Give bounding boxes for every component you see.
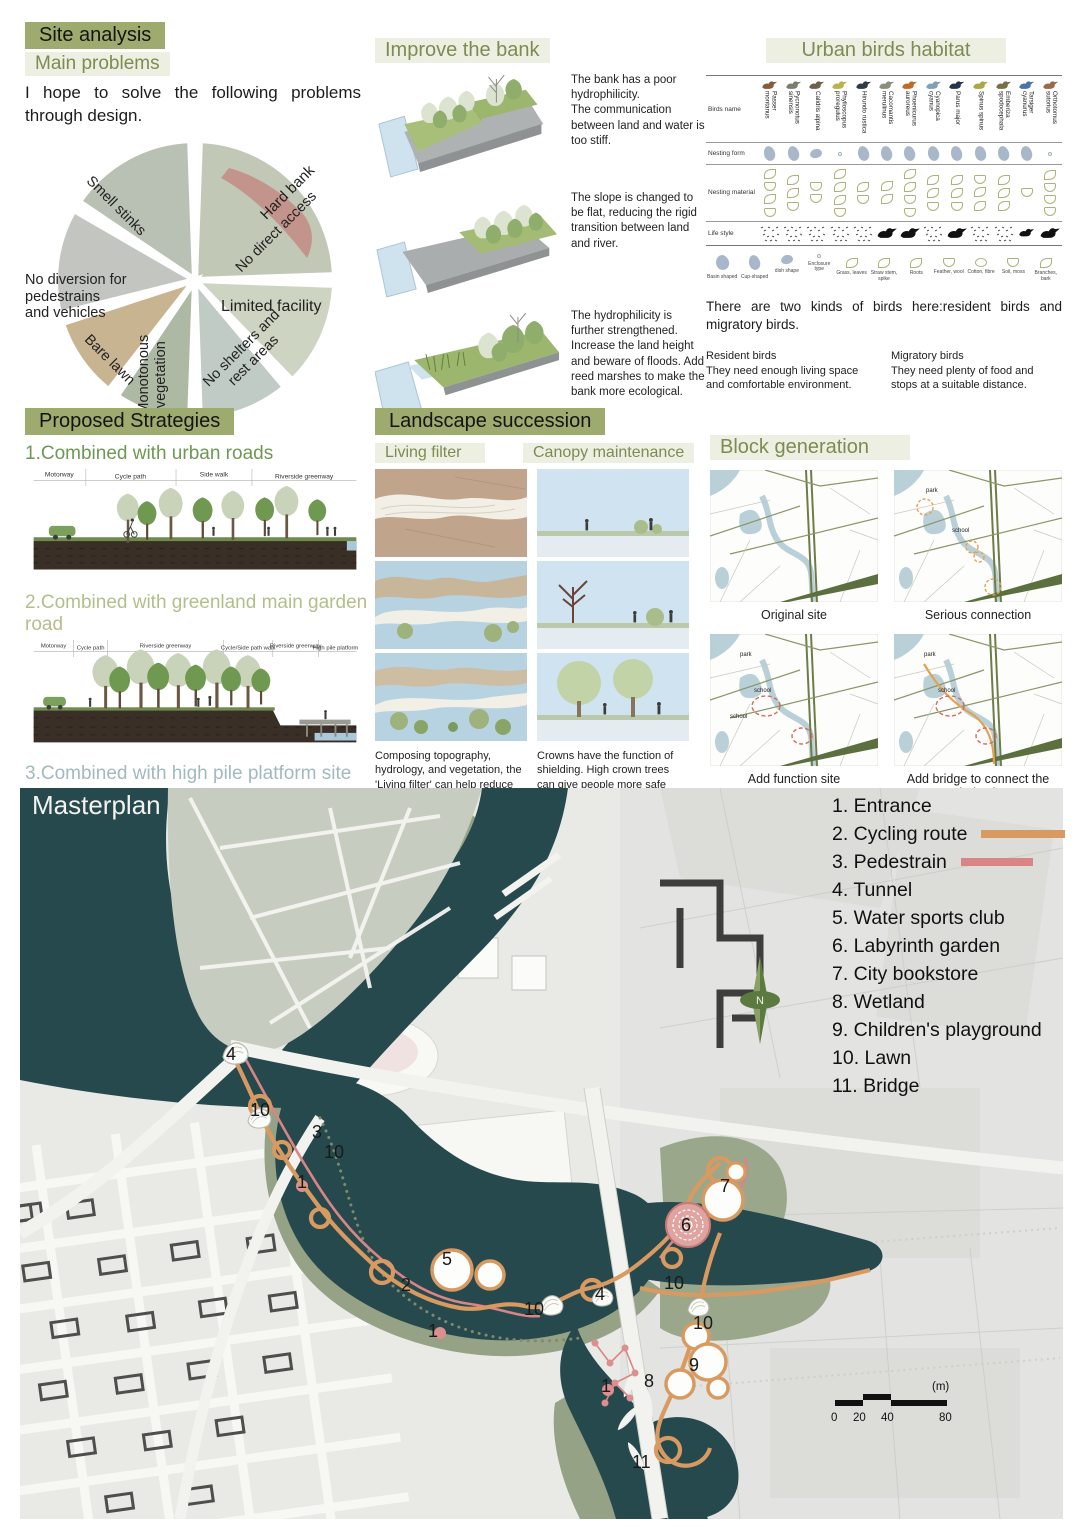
living-filter-heading: Living filter: [375, 443, 485, 463]
legend-caption: Soil, moss: [1002, 270, 1025, 276]
bird-icon: [761, 80, 778, 91]
canopy-heading: Canopy maintenance: [523, 443, 694, 463]
improve-bank-title: Improve the bank: [375, 38, 550, 63]
bird-icon: [901, 80, 918, 91]
nest-material-icons: [828, 167, 851, 219]
nest-material-icons: [922, 174, 945, 213]
bank-diagram-slope: [375, 191, 561, 299]
bird-name: Phoenicurus auroreus: [903, 91, 916, 139]
living-filter-image-3: [375, 653, 527, 741]
block-generation-section: Block generation Original: [710, 435, 1066, 806]
straw-stem-icon: [878, 258, 890, 268]
svg-text:1: 1: [601, 1376, 611, 1396]
birds-title: Urban birds habitat: [766, 38, 1006, 63]
north-label: N: [756, 995, 764, 1007]
basin-shaped-icon: [714, 253, 730, 271]
nest-material-icons: [992, 173, 1015, 213]
problems-pie-diagram: Smell stinks Hard bank No direct access …: [25, 130, 365, 430]
resident-bird-icon: [876, 226, 898, 241]
section-label: Riverside greenway: [275, 473, 334, 480]
school-label: school: [730, 714, 747, 720]
strategy-2-section-drawing: Motorway Cycle path Riverside greenway C…: [25, 638, 365, 750]
bird-name: Cyanopica cyanus: [927, 91, 940, 139]
migratory-birds-title: Migratory birds: [891, 349, 1062, 363]
roots-icon: [910, 258, 922, 268]
cup-shaped-icon: [747, 254, 761, 271]
poster: Site analysis Main problems I hope to so…: [0, 0, 1080, 1527]
park-label: park: [924, 652, 937, 658]
block-map-2: park school Serious connection: [894, 470, 1062, 628]
strategy-1-section-drawing: Motorway Cycle path Side walk Riverside …: [25, 467, 365, 579]
footprints-icon: [806, 225, 826, 242]
legend-caption: Grass, leaves: [836, 271, 867, 277]
masterplan-title: Masterplan: [32, 790, 161, 821]
canopy-image-2: [537, 561, 689, 649]
legend-caption: Roots: [910, 271, 923, 277]
legend-item: 11. Bridge: [832, 1073, 1065, 1101]
row-label-birds-name: Birds name: [706, 106, 758, 113]
block-generation-title: Block generation: [710, 435, 910, 460]
school-label: school: [938, 688, 955, 694]
nest-form-icon: [1048, 152, 1052, 156]
bank-diagram-hard: [375, 73, 561, 181]
resident-bird-icon: [1039, 226, 1061, 241]
nest-form-icon: [763, 145, 777, 162]
migratory-birds-block: Migratory birds They need plenty of food…: [891, 349, 1062, 392]
svg-text:80: 80: [939, 1412, 952, 1424]
cycling-route-swatch: [981, 830, 1065, 838]
living-filter-image-2: [375, 561, 527, 649]
cotton-fibre-icon: [975, 258, 987, 267]
legend-caption: Branches, bark: [1030, 271, 1062, 282]
bird-icon: [1042, 80, 1059, 91]
legend-item: 7. City bookstore: [832, 961, 1065, 989]
school-label: school: [754, 688, 771, 694]
svg-text:10: 10: [693, 1313, 713, 1333]
site-analysis-title: Site analysis: [25, 22, 165, 49]
svg-text:3: 3: [312, 1122, 322, 1142]
nest-material-icons: [852, 180, 875, 205]
resident-bird-icon: [1018, 227, 1035, 239]
bank-diagram-marsh: [375, 309, 561, 417]
block-map-caption: Serious connection: [894, 608, 1062, 622]
bird-name: Hirundo rustica: [860, 91, 867, 139]
bird-name: Phylloscopus proregulus: [833, 91, 846, 139]
svg-text:10: 10: [250, 1100, 270, 1120]
svg-text:8: 8: [644, 1371, 654, 1391]
site-analysis-section: Site analysis Main problems I hope to so…: [25, 22, 370, 430]
branches-bark-icon: [1040, 258, 1052, 268]
park-label: park: [926, 488, 939, 494]
legend-item: 4. Tunnel: [832, 876, 1065, 904]
feather-wool-icon: [943, 258, 955, 267]
nest-form-icon: [926, 145, 940, 162]
bird-name: Emberiza spodocephala: [997, 91, 1010, 139]
bird-icon: [855, 80, 872, 91]
resident-birds-block: Resident birds They need enough living s…: [706, 349, 877, 392]
nest-form-icon: [786, 145, 800, 162]
park-label: park: [740, 652, 753, 658]
legend-caption: dish shape: [775, 269, 799, 275]
birds-table: Birds name Passer montanus Pycnonotus si…: [706, 75, 1062, 246]
legend-caption: Enclosure type: [803, 262, 835, 273]
resident-birds-text: They need enough living space and comfor…: [706, 364, 877, 393]
trees: [93, 649, 271, 708]
svg-text:10: 10: [324, 1142, 344, 1162]
resident-bird-icon: [899, 226, 921, 241]
svg-text:4: 4: [226, 1044, 236, 1064]
section-label: High pile platform: [313, 645, 359, 651]
svg-text:2: 2: [401, 1275, 411, 1295]
section-label: Cycle path: [115, 473, 147, 480]
svg-text:0: 0: [831, 1412, 837, 1424]
bird-name: Calidris alpina: [813, 91, 820, 139]
section-label: Side walk: [200, 471, 229, 478]
legend-caption: Straw stem, spike: [868, 271, 900, 282]
nest-material-icons: [805, 181, 828, 205]
masterplan-legend: 1. Entrance 2. Cycling route 3. Pedestra…: [832, 792, 1065, 1101]
svg-text:10: 10: [664, 1273, 684, 1293]
section-label: Cycle/Side path walk: [221, 645, 276, 651]
bird-icon: [808, 80, 825, 91]
footprints-icon: [760, 225, 780, 242]
row-label-nesting-form: Nesting form: [706, 150, 758, 157]
enclosure-type-icon: [817, 254, 821, 258]
legend-caption: Basin shaped: [707, 275, 737, 281]
section-label: Cycle path: [77, 645, 105, 651]
improve-bank-section: Improve the bank: [375, 38, 705, 427]
row-label-nesting-material: Nesting material: [706, 189, 758, 196]
svg-text:1: 1: [428, 1321, 438, 1341]
footprints-icon: [923, 225, 943, 242]
nest-form-icon: [996, 145, 1010, 162]
bird-name: Cacomantis merulinus: [880, 91, 893, 139]
nest-material-icons: [1015, 187, 1038, 199]
svg-text:40: 40: [881, 1412, 894, 1424]
block-map-caption: Original site: [710, 608, 878, 622]
bird-icon: [925, 80, 942, 91]
bird-name: Parus major: [953, 91, 960, 139]
nest-form-icon: [810, 148, 824, 160]
nest-form-icon: [950, 145, 964, 162]
birds-note: There are two kinds of birds here:reside…: [706, 298, 1062, 333]
main-problems-subtitle: Main problems: [25, 52, 170, 76]
nest-material-icons: [898, 168, 921, 219]
nest-form-icon: [1020, 145, 1034, 162]
canopy-image-1: [537, 469, 689, 557]
svg-text:11: 11: [632, 1452, 651, 1472]
bank-step-2: The slope is changed to be flat, reducin…: [375, 191, 705, 299]
legend-item: 3. Pedestrain: [832, 848, 1065, 876]
svg-text:20: 20: [853, 1412, 866, 1424]
strategy-3-heading: 3.Combined with high pile platform site: [25, 763, 370, 785]
svg-text:5: 5: [442, 1249, 452, 1269]
site-analysis-intro: I hope to solve the following problems t…: [25, 82, 361, 128]
footprints-icon: [994, 225, 1014, 242]
resident-birds-title: Resident birds: [706, 349, 877, 363]
trees: [117, 486, 326, 543]
soil-moss-icon: [1007, 258, 1019, 267]
bird-icon: [972, 80, 989, 91]
legend-caption: Cotton, fibre: [967, 270, 994, 276]
bird-icon: [831, 80, 848, 91]
section-label: Motorway: [45, 471, 74, 478]
strategy-1-heading: 1.Combined with urban roads: [25, 443, 370, 465]
succession-title: Landscape succession: [375, 408, 605, 435]
dish-shape-icon: [780, 253, 794, 265]
pile-platform: [299, 720, 350, 725]
svg-text:1: 1: [297, 1172, 307, 1192]
school-label: school: [952, 528, 969, 534]
svg-text:4: 4: [595, 1284, 605, 1304]
footprints-icon: [853, 225, 873, 242]
canopy-image-3: [537, 653, 689, 741]
problem-monotonous: Monotonous vegetation: [136, 335, 169, 415]
succession-grid: [375, 469, 705, 741]
footprints-icon: [783, 225, 803, 242]
bird-icon: [878, 80, 895, 91]
nest-legend: Basin shaped Cup-shaped dish shape Enclo…: [706, 252, 1062, 283]
cyclist-icon: [124, 519, 137, 538]
block-map-4: park school Add bridge to connect the wh…: [894, 634, 1062, 806]
migratory-birds-text: They need plenty of food and stops at a …: [891, 364, 1062, 393]
scale-unit: (m): [932, 1381, 949, 1393]
nest-form-icon: [856, 145, 870, 162]
legend-item: 2. Cycling route: [832, 820, 1065, 848]
bird-name: Pycnonotus sinensis: [786, 91, 799, 139]
svg-text:9: 9: [689, 1355, 699, 1375]
strategies-title: Proposed Strategies: [25, 408, 234, 435]
nest-material-icons: [781, 174, 804, 213]
svg-text:10: 10: [524, 1299, 544, 1319]
legend-caption: Feather, wool: [934, 270, 964, 276]
grass-leaves-icon: [846, 258, 858, 268]
bird-icon: [785, 80, 802, 91]
nest-material-icons: [758, 168, 781, 219]
bank-step-3-text: The hydrophilicity is further strengthen…: [571, 309, 705, 400]
section-label: Riverside greenway: [140, 643, 192, 649]
nest-form-icon: [973, 145, 987, 162]
footprints-icon: [970, 225, 990, 242]
svg-text:6: 6: [681, 1215, 691, 1235]
block-map-caption: Add function site: [710, 772, 878, 786]
section-label: Motorway: [41, 643, 67, 649]
living-filter-image-1: [375, 469, 527, 557]
legend-caption: Cup-shaped: [741, 275, 768, 281]
bird-name: Tarsiger cyanurus: [1020, 91, 1033, 139]
bank-step-3: The hydrophilicity is further strengthen…: [375, 309, 705, 417]
legend-item: 8. Wetland: [832, 989, 1065, 1017]
bank-step-1-text: The bank has a poor hydrophilicity. The …: [571, 73, 705, 149]
row-label-life-style: Life style: [706, 230, 758, 237]
footprints-icon: [830, 225, 850, 242]
birds-section: Urban birds habitat Birds name Passer mo…: [706, 38, 1066, 392]
legend-item: 5. Water sports club: [832, 904, 1065, 932]
legend-item: 10. Lawn: [832, 1045, 1065, 1073]
nest-form-icon: [838, 152, 842, 156]
bank-step-1: The bank has a poor hydrophilicity. The …: [375, 73, 705, 181]
nest-material-icons: [1039, 168, 1062, 218]
resident-bird-icon: [946, 226, 968, 241]
nest-form-icon: [903, 145, 917, 162]
block-map-3: park school school Add function site: [710, 634, 878, 806]
bank-step-2-text: The slope is changed to be flat, reducin…: [571, 191, 705, 252]
bird-icon: [1018, 80, 1035, 91]
bird-name: Spinus spinus: [977, 91, 984, 139]
pedestrian-swatch: [961, 858, 1033, 866]
legend-item: 9. Children's playground: [832, 1017, 1065, 1045]
svg-text:7: 7: [720, 1176, 730, 1196]
bird-icon: [948, 80, 965, 91]
nest-material-icons: [875, 180, 898, 206]
succession-section: Landscape succession Living filter Canop…: [375, 408, 705, 806]
strategy-2-heading: 2.Combined with greenland main garden ro…: [25, 592, 370, 636]
bird-icon: [995, 80, 1012, 91]
block-map-1: Original site: [710, 470, 878, 628]
masterplan: Masterplan 1. Entrance 2. Cycling route …: [20, 788, 1063, 1519]
nest-material-icons: [968, 174, 991, 213]
nest-form-icon: [879, 145, 893, 162]
legend-item: 1. Entrance: [832, 792, 1065, 820]
bird-name: Passer montanus: [763, 91, 776, 139]
problem-no-diversion: No diversion for pedestrains and vehicle…: [25, 272, 197, 322]
nest-material-icons: [945, 174, 968, 213]
bird-name: Orthotomus sutorius: [1044, 91, 1057, 139]
legend-item: 6. Labyrinth garden: [832, 932, 1065, 960]
